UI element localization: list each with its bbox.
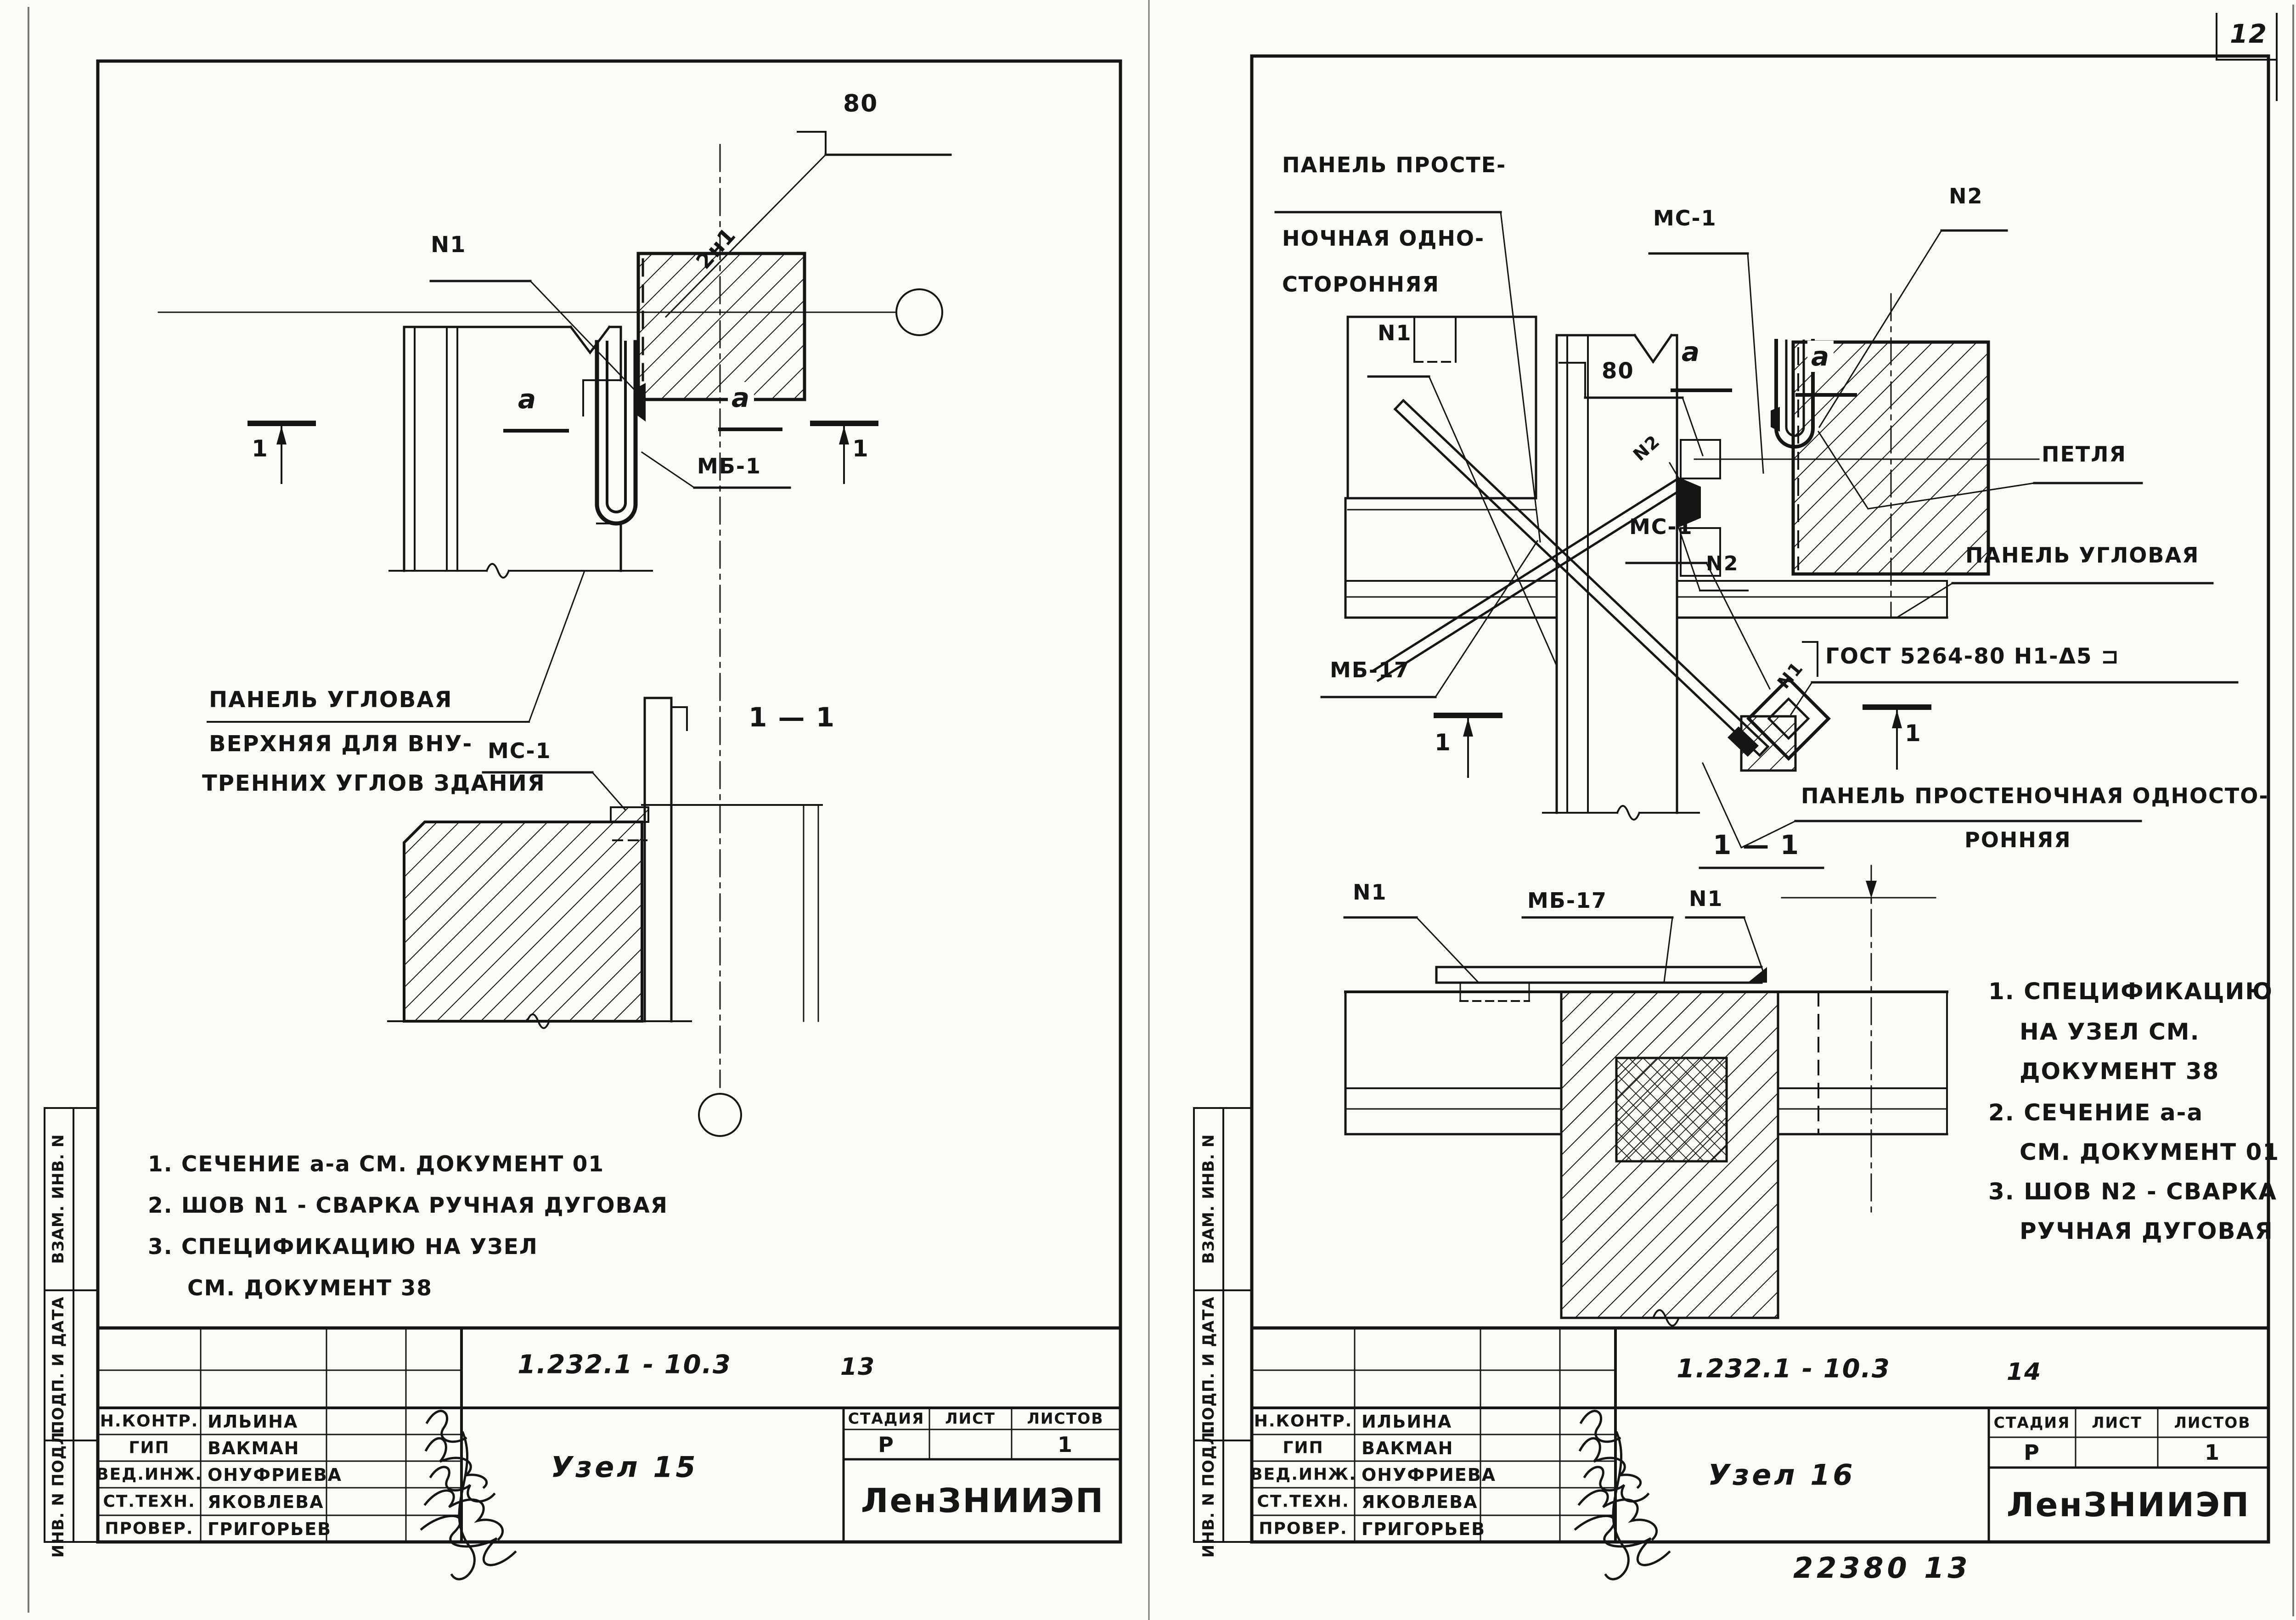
panel-caption-line1: ПАНЕЛЬ УГЛОВАЯ [209, 687, 452, 713]
label-mb17: МБ-17 [1330, 658, 1410, 682]
label-n2-mid: N2 [1706, 552, 1739, 575]
label-ms1: МС-1 [488, 738, 551, 763]
panel-bottom-caption1: ПАНЕЛЬ ПРОСТЕНОЧНАЯ ОДНОСТО- [1801, 783, 2269, 808]
panel-caption-line2: ВЕРХНЯЯ ДЛЯ ВНУ- [209, 731, 473, 757]
section-mark-1-right: 1 [1905, 720, 1922, 747]
grout-key [1616, 1058, 1727, 1161]
label-petlya: ПЕТЛЯ [2042, 442, 2127, 467]
note-line: 3. СПЕЦИФИКАЦИЮ НА УЗЕЛ [148, 1234, 538, 1260]
right-plan-view [1276, 212, 2237, 868]
ms1-plate [611, 807, 648, 822]
note-line: НА УЗЕЛ СМ. [2020, 1018, 2200, 1045]
staff-role: СТ.ТЕХН. [103, 1492, 195, 1511]
label-mb1: МБ-1 [697, 454, 761, 478]
staff-name: ВАКМАН [208, 1438, 299, 1458]
staff-role: ВЕД.ИНЖ. [96, 1465, 203, 1484]
label-s-n1-right: N1 [1689, 886, 1723, 911]
shear-key [1741, 716, 1795, 771]
staff-name: ГРИГОРЬЕВ [1362, 1519, 1486, 1539]
label-ms1-top: МС-1 [1653, 206, 1717, 231]
staff-role: ПРОВЕР. [1259, 1519, 1347, 1538]
panel-bottom-caption2: РОННЯЯ [1964, 827, 2071, 852]
side-strip-label: ПОДП. И ДАТА [49, 1296, 68, 1434]
label-n1: N1 [1378, 321, 1412, 345]
label-dim-80: 80 [843, 90, 878, 118]
staff-name: ВАКМАН [1362, 1438, 1453, 1458]
label-n1: N1 [431, 232, 467, 258]
right-section-view [1345, 866, 1947, 1326]
drawing-linework [0, 0, 2296, 1620]
stamp-header-sheets: ЛИСТОВ [1027, 1410, 1104, 1428]
note-line: СМ. ДОКУМЕНТ 38 [187, 1276, 433, 1301]
label-a-left: a [518, 383, 537, 415]
side-strip-label: ИНВ. N ПОДЛ. [1199, 1425, 1218, 1558]
staff-name: ОНУФРИЕВА [1362, 1465, 1496, 1485]
sheet-left-frame [98, 61, 1120, 1542]
node-title: Узел 15 [551, 1451, 698, 1484]
stamp-sheets-value: 1 [1058, 1432, 1073, 1457]
label-gost: ГОСТ 5264-80 Н1-Δ5 ⊐ [1825, 644, 2120, 669]
label-dim-80: 80 [1602, 358, 1634, 384]
doc-code: 1.232.1 - 10.3 [518, 1350, 732, 1380]
panel-top-caption3: СТОРОННЯЯ [1282, 272, 1440, 297]
section-mark-1-left: 1 [252, 435, 269, 462]
section-title: 1 — 1 [748, 702, 835, 733]
note-line: ДОКУМЕНТ 38 [2020, 1058, 2219, 1085]
staff-role: ВЕД.ИНЖ. [1250, 1465, 1356, 1484]
right-plan-brace-mb17 [1372, 400, 1768, 755]
staff-name: ИЛЬИНА [1362, 1412, 1452, 1432]
note-line: 1. СПЕЦИФИКАЦИЮ [1988, 978, 2273, 1005]
note-line: 2. СЕЧЕНИЕ a-a [1988, 1099, 2203, 1126]
stamp-stage-value: Р [878, 1432, 895, 1457]
page-number: 12 [2230, 19, 2268, 49]
stamp-header-stage: СТАДИЯ [1994, 1414, 2071, 1432]
scanned-drawing-page: N1 80 2н1 a a МБ-1 1 1 ПАНЕЛЬ УГЛОВАЯ ВЕ… [0, 0, 2296, 1620]
note-line: 1. СЕЧЕНИЕ a-a СМ. ДОКУМЕНТ 01 [148, 1152, 604, 1177]
footer-handwritten-code: 22380 13 [1793, 1551, 1971, 1585]
label-a-right: a [1807, 341, 1834, 372]
staff-role: СТ.ТЕХН. [1257, 1492, 1349, 1511]
label-n2-top: N2 [1949, 184, 1983, 208]
label-s-mb17: МБ-17 [1527, 888, 1607, 913]
node-title: Узел 16 [1708, 1458, 1855, 1492]
staff-name: ЯКОВЛЕВА [208, 1492, 324, 1512]
left-plan-wall-panel [389, 327, 652, 578]
section-mark-1-left: 1 [1435, 729, 1452, 756]
signatures [422, 1411, 515, 1579]
right-section-leaders [1345, 917, 1766, 983]
panel-caption-line3: ТРЕННИХ УГЛОВ ЗДАНИЯ [202, 771, 546, 796]
left-section-hatched-panel [404, 822, 642, 1021]
right-plan-section-marks [1436, 707, 1929, 777]
panel-top-caption2: НОЧНАЯ ОДНО- [1282, 226, 1485, 251]
staff-role: Н.КОНТР. [1254, 1412, 1353, 1431]
staff-name: ИЛЬИНА [208, 1412, 298, 1432]
label-a-left: a [1682, 336, 1700, 367]
note-line: РУЧНАЯ ДУГОВАЯ [2020, 1218, 2273, 1244]
doc-code: 1.232.1 - 10.3 [1677, 1354, 1891, 1384]
stamp-header-stage: СТАДИЯ [848, 1410, 925, 1428]
datum-circle [896, 289, 942, 335]
side-strip-label: ПОДП. И ДАТА [1199, 1296, 1218, 1434]
stamp-header-sheets: ЛИСТОВ [2174, 1414, 2251, 1432]
note-line: 3. ШОВ N2 - СВАРКА [1988, 1178, 2277, 1205]
datum-circle [699, 1094, 741, 1136]
sheet-number: 13 [840, 1353, 875, 1381]
label-a-right: a [728, 382, 754, 413]
org-name: ЛенЗНИИЭП [2007, 1485, 2250, 1524]
staff-role: Н.КОНТР. [100, 1412, 199, 1431]
label-panel-corner: ПАНЕЛЬ УГЛОВАЯ [1965, 543, 2199, 568]
stamp-header-sheet: ЛИСТ [2092, 1414, 2142, 1432]
sheet-number: 14 [2007, 1358, 2042, 1386]
left-plan-leaders [208, 132, 951, 722]
left-plan-hatched-panel [638, 253, 805, 399]
label-ms1-mid: МС-1 [1629, 514, 1693, 539]
staff-role: ГИП [1283, 1439, 1323, 1457]
staff-name: ЯКОВЛЕВА [1362, 1492, 1478, 1512]
panel-top-caption1: ПАНЕЛЬ ПРОСТЕ- [1282, 152, 1506, 177]
staff-role: ГИП [129, 1439, 169, 1457]
stamp-header-sheet: ЛИСТ [945, 1410, 996, 1428]
scan-edges [28, 0, 2293, 1620]
section-mark-1-right: 1 [852, 435, 869, 462]
signatures [1576, 1411, 1669, 1579]
right-plan-anchor [1728, 679, 1829, 771]
right-plan-wall-panel [1543, 335, 1699, 820]
org-name: ЛенЗНИИЭП [861, 1481, 1104, 1520]
label-s-n1-left: N1 [1353, 880, 1387, 905]
stamp-sheets-value: 1 [2205, 1440, 2220, 1465]
note-line: 2. ШОВ N1 - СВАРКА РУЧНАЯ ДУГОВАЯ [148, 1193, 668, 1218]
side-strip-label: ВЗАМ. ИНВ. N [49, 1134, 68, 1264]
side-strip-label: ИНВ. N ПОДЛ. [49, 1425, 68, 1558]
staff-role: ПРОВЕР. [105, 1519, 193, 1538]
staff-name: ОНУФРИЕВА [208, 1465, 342, 1485]
note-line: СМ. ДОКУМЕНТ 01 [2020, 1139, 2279, 1165]
stamp-stage-value: Р [2024, 1440, 2040, 1465]
section-title: 1 — 1 [1713, 829, 1800, 861]
side-strip-label: ВЗАМ. ИНВ. N [1199, 1134, 1218, 1264]
staff-name: ГРИГОРЬЕВ [208, 1519, 332, 1539]
